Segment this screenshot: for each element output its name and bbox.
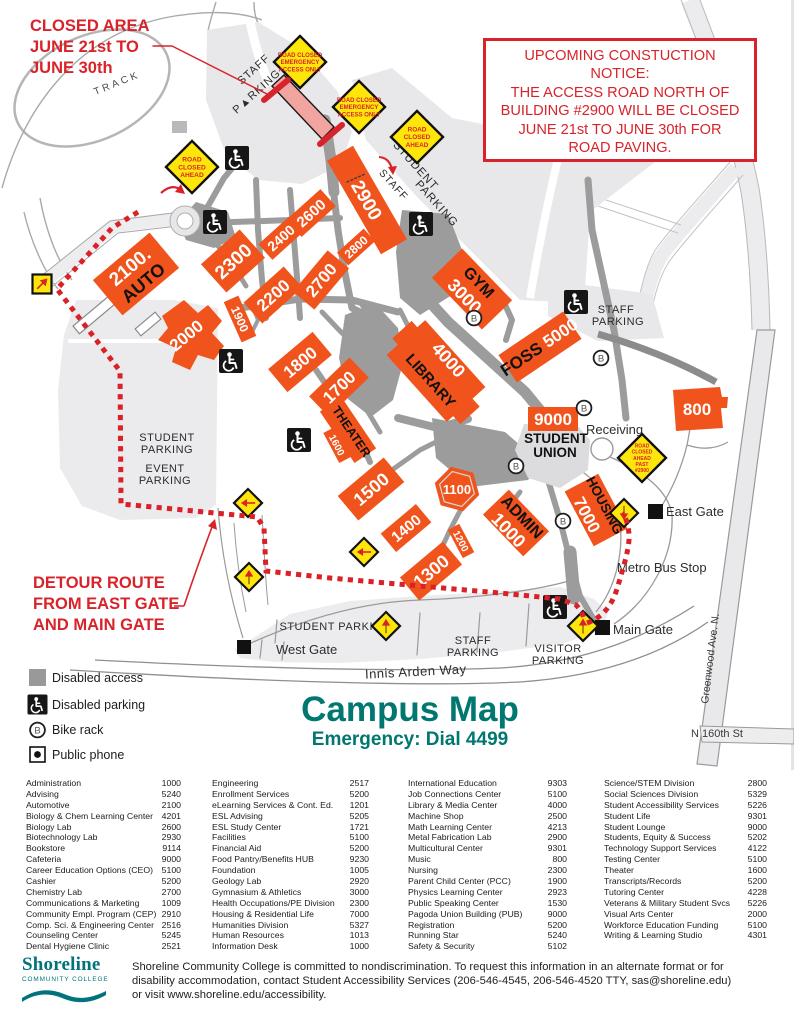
svg-text:Disabled access: Disabled access bbox=[52, 671, 143, 685]
svg-text:9000: 9000 bbox=[534, 410, 572, 429]
svg-text:B: B bbox=[513, 461, 519, 472]
svg-text:ROAD: ROAD bbox=[635, 443, 650, 449]
svg-text:#2900: #2900 bbox=[635, 468, 649, 474]
svg-text:STUDENT: STUDENT bbox=[524, 431, 589, 446]
svg-text:STAFF: STAFF bbox=[455, 635, 492, 647]
svg-text:VISITOR: VISITOR bbox=[534, 643, 581, 655]
svg-text:CLOSED: CLOSED bbox=[404, 134, 431, 141]
svg-text:Main Gate: Main Gate bbox=[613, 622, 673, 637]
svg-text:CLOSED: CLOSED bbox=[178, 164, 206, 171]
svg-text:B: B bbox=[471, 313, 477, 324]
svg-text:EMERGENCY: EMERGENCY bbox=[340, 105, 379, 111]
svg-text:Receiving: Receiving bbox=[586, 422, 643, 437]
svg-text:PARKING: PARKING bbox=[447, 647, 499, 659]
svg-text:AHEAD: AHEAD bbox=[633, 456, 651, 462]
svg-text:PARKING: PARKING bbox=[139, 475, 191, 487]
svg-text:ACCESS ONLY: ACCESS ONLY bbox=[279, 67, 322, 73]
svg-text:AHEAD: AHEAD bbox=[406, 142, 429, 149]
svg-text:ROAD CLOSED: ROAD CLOSED bbox=[278, 53, 323, 59]
svg-text:PARKING: PARKING bbox=[141, 444, 193, 456]
svg-text:PARKING: PARKING bbox=[532, 655, 584, 667]
svg-text:EMERGENCY: EMERGENCY bbox=[281, 60, 320, 66]
svg-text:West Gate: West Gate bbox=[276, 642, 337, 657]
svg-text:CLOSED: CLOSED bbox=[632, 450, 653, 456]
svg-text:ROAD CLOSED: ROAD CLOSED bbox=[337, 98, 382, 104]
svg-text:EVENT: EVENT bbox=[145, 463, 184, 475]
svg-text:B: B bbox=[598, 353, 604, 364]
svg-text:Metro Bus Stop: Metro Bus Stop bbox=[617, 560, 707, 575]
svg-text:B: B bbox=[560, 516, 566, 527]
svg-text:STAFF: STAFF bbox=[598, 304, 635, 316]
svg-text:ROAD: ROAD bbox=[182, 157, 202, 164]
svg-text:AHEAD: AHEAD bbox=[180, 172, 204, 179]
svg-text:ROAD: ROAD bbox=[408, 127, 427, 134]
svg-text:PARKING: PARKING bbox=[592, 316, 644, 328]
svg-text:PAST: PAST bbox=[636, 462, 649, 468]
svg-text:STUDENT: STUDENT bbox=[139, 432, 194, 444]
svg-text:800: 800 bbox=[683, 400, 711, 419]
svg-text:B: B bbox=[581, 403, 587, 414]
svg-text:1100: 1100 bbox=[443, 482, 471, 497]
svg-text:East Gate: East Gate bbox=[666, 504, 724, 519]
svg-text:UNION: UNION bbox=[533, 445, 577, 460]
svg-text:ACCESS ONLY: ACCESS ONLY bbox=[338, 112, 381, 118]
